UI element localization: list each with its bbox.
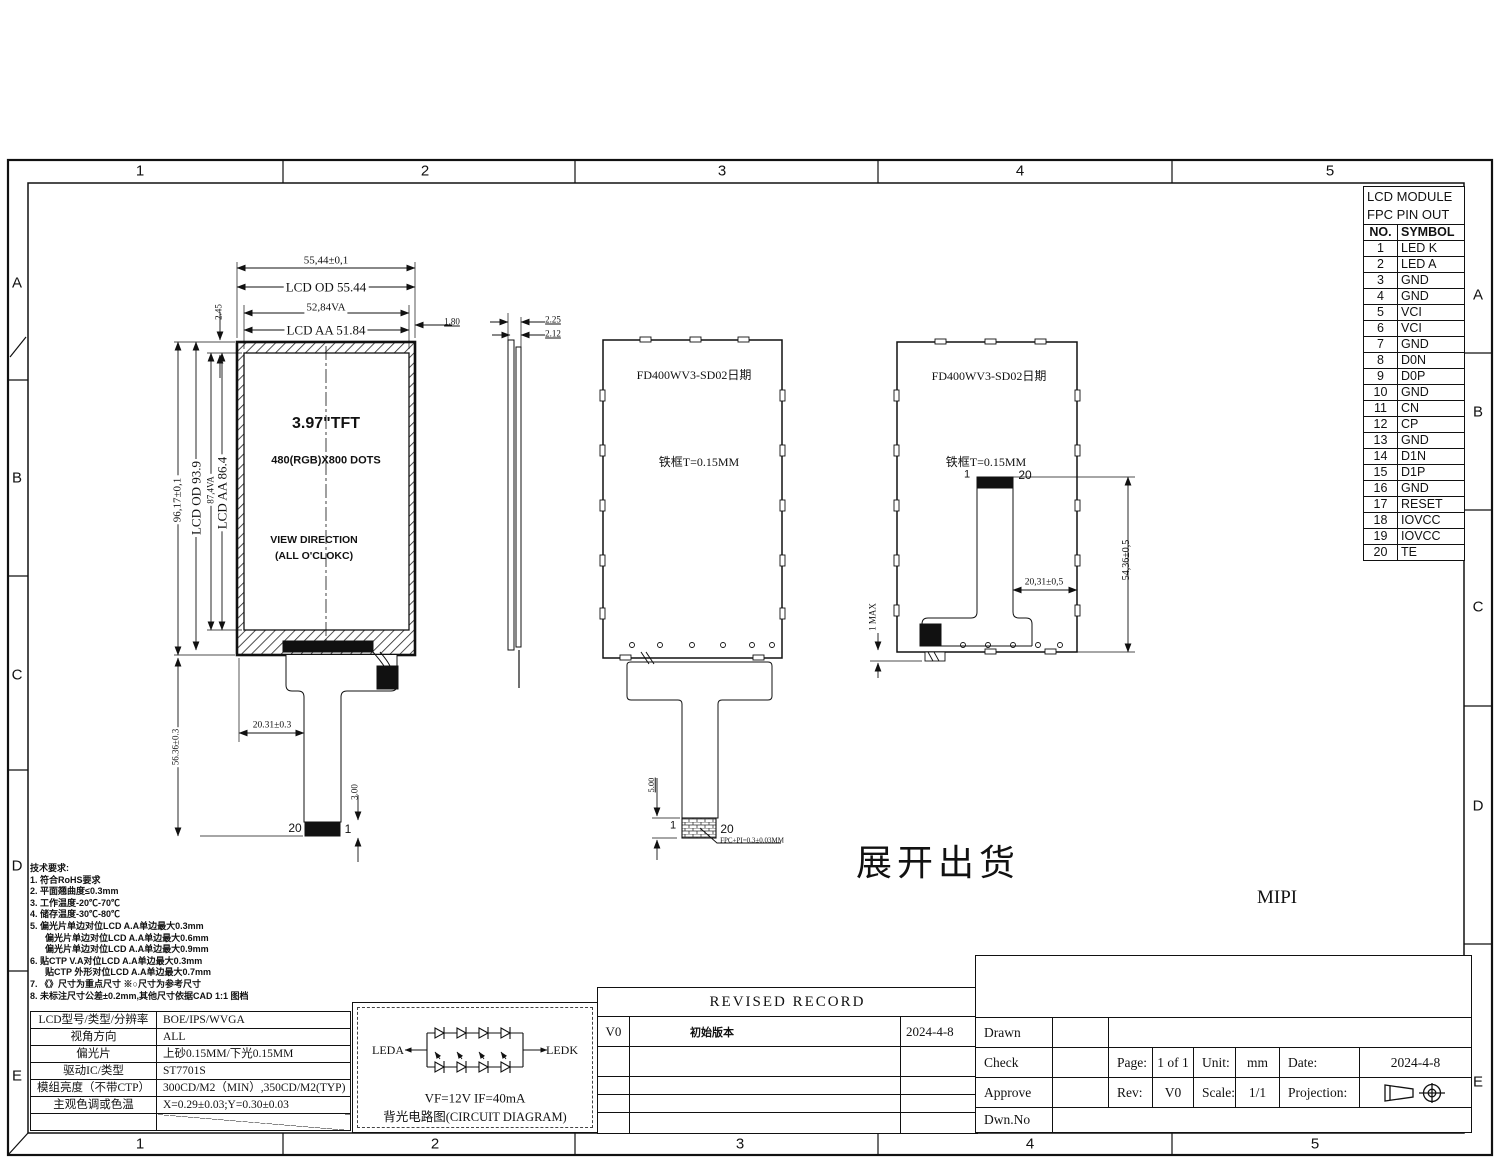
revised-record-title: REVISED RECORD <box>598 988 978 1017</box>
dwn-no-value <box>1053 1108 1472 1133</box>
dim-fpc-tail: 5.00 <box>647 778 656 793</box>
front-pin1-label: 1 <box>345 823 352 835</box>
revision-row-empty <box>598 1047 978 1077</box>
note-item: 1. 符合RoHS要求 <box>30 875 340 887</box>
rear-view-drawing <box>595 330 795 860</box>
led-anode-label: LEDA <box>372 1044 404 1056</box>
zone-row-left-e: E <box>12 1068 22 1085</box>
rev-label: Rev: <box>1109 1078 1153 1108</box>
pin-row: 19IOVCC <box>1364 529 1465 545</box>
circuit-spec: VF=12V IF=40mA <box>425 1092 526 1105</box>
pin-row: 20TE <box>1364 545 1465 561</box>
revision-row: V0 初始版本 2024-4-8 <box>598 1017 978 1047</box>
rev-value: V0 <box>1153 1078 1194 1108</box>
spec-row: 主观色调或色温X=0.29±0.03;Y=0.30±0.03 <box>31 1097 351 1114</box>
revision-row-empty <box>598 1113 978 1134</box>
note-item: 贴CTP 外形对位LCD A.A单边最大0.7mm <box>30 967 340 979</box>
front-pin20-label: 20 <box>288 822 301 834</box>
revision-row-empty <box>598 1077 978 1095</box>
pin-row: 14D1N <box>1364 449 1465 465</box>
fpc-thickness-note: FPC+PI=0.3±0.03MM <box>720 838 784 845</box>
dim-od-width-tol: 55,44±0,1 <box>304 256 349 267</box>
panel-size-label: 3.97"TFT <box>292 416 360 432</box>
note-item: 6. 贴CTP V.A对位LCD A.A单边最大0.3mm <box>30 956 340 968</box>
pin-row: 16GND <box>1364 481 1465 497</box>
dim-od-height-tol: 96,17±0,1 <box>173 476 184 525</box>
projection-label: Projection: <box>1280 1078 1360 1108</box>
title-block-row-approve: Approve Rev: V0 Scale: 1/1 Projection: <box>976 1078 1472 1108</box>
circuit-caption: 背光电路图(CIRCUIT DIAGRAM) <box>383 1111 566 1124</box>
title-block-row-check: Check Page: 1 of 1 Unit: mm Date: 2024-4… <box>976 1048 1472 1078</box>
pin-col-no: NO. <box>1364 225 1398 241</box>
zone-col-bottom-2: 2 <box>431 1136 439 1153</box>
pin-row: 5VCI <box>1364 305 1465 321</box>
pin-row: 2LED A <box>1364 257 1465 273</box>
page-label: Page: <box>1109 1048 1153 1078</box>
note-item: 8. 未标注尺寸公差±0.2mm,其他尺寸依据CAD 1:1 图档 <box>30 991 340 1003</box>
notes-heading: 技术要求: <box>30 863 340 875</box>
revision-description: 初始版本 <box>630 1017 901 1047</box>
pin-row: 13GND <box>1364 433 1465 449</box>
pin-row: 17RESET <box>1364 497 1465 513</box>
dim-right-gap: 1.80 <box>444 318 460 327</box>
folded-frame-note: 铁框T=0.15MM <box>946 456 1026 468</box>
pin-row: 18IOVCC <box>1364 513 1465 529</box>
note-item: 7. 《》尺寸为重点尺寸 ※○尺寸为参考尺寸 <box>30 979 340 991</box>
approve-label: Approve <box>976 1078 1053 1108</box>
led-cathode-label: LEDK <box>546 1044 578 1056</box>
shipping-note: 展开出货 <box>856 845 1020 881</box>
zone-row-left-c: C <box>12 667 23 684</box>
fpc-pinout-table: LCD MODULEFPC PIN OUT NO.SYMBOL 1LED K 2… <box>1363 186 1465 561</box>
pin-row: 12CP <box>1364 417 1465 433</box>
zone-row-left-b: B <box>12 470 22 487</box>
zone-row-right-a: A <box>1473 287 1483 304</box>
view-direction-line1: VIEW DIRECTION <box>270 535 358 546</box>
folded-pin1-label: 1 <box>964 470 970 481</box>
pin-col-symbol: SYMBOL <box>1398 225 1465 241</box>
title-block: Drawn Check Page: 1 of 1 Unit: mm Date: … <box>975 955 1472 1133</box>
zone-col-top-3: 3 <box>718 163 726 180</box>
spec-row: LCD型号/类型/分辨率BOE/IPS/WVGA <box>31 1012 351 1029</box>
dim-fpc-offset: 20.31±0.3 <box>253 721 291 731</box>
lcd-spec-table: LCD型号/类型/分辨率BOE/IPS/WVGA 视角方向ALL 偏光片上砂0.… <box>30 1011 351 1131</box>
revision-version: V0 <box>598 1017 630 1047</box>
title-block-row-dwnno: Dwn.No <box>976 1108 1472 1133</box>
zone-col-bottom-3: 3 <box>736 1136 744 1153</box>
zone-row-left-a: A <box>12 275 22 292</box>
rear-pin20-label: 20 <box>720 823 733 835</box>
dim-connector-height: 3.00 <box>351 784 360 800</box>
drawing-sheet: 1 2 3 4 5 1 2 3 4 5 A B C D E A B C D E … <box>0 0 1500 1159</box>
dim-folded-max: 1 MAX <box>869 603 878 631</box>
page-value: 1 of 1 <box>1153 1048 1194 1078</box>
note-item: 5. 偏光片单边对位LCD A.A单边最大0.3mm <box>30 921 340 933</box>
zone-row-left-d: D <box>12 858 23 875</box>
spec-row: 驱动IC/类型ST7701S <box>31 1063 351 1080</box>
technical-notes: 技术要求: 1. 符合RoHS要求 2. 平面翘曲度≤0.3mm 3. 工作温度… <box>30 863 340 1002</box>
pin-table-title: LCD MODULEFPC PIN OUT <box>1364 187 1465 225</box>
title-block-row-drawn: Drawn <box>976 1018 1472 1048</box>
pin-row: 10GND <box>1364 385 1465 401</box>
view-direction-line2: (ALL O'CLOKC) <box>275 551 353 562</box>
title-block-header-space <box>976 956 1472 1018</box>
pin-row: 15D1P <box>1364 465 1465 481</box>
approve-signature <box>1053 1078 1109 1108</box>
zone-col-top-1: 1 <box>136 163 144 180</box>
drawn-label: Drawn <box>976 1018 1053 1048</box>
spec-row-empty <box>31 1114 351 1131</box>
zone-row-right-c: C <box>1473 599 1484 616</box>
panel-resolution-label: 480(RGB)X800 DOTS <box>271 456 380 467</box>
revision-row-empty <box>598 1095 978 1113</box>
rear-part-number: FD400WV3-SD02日期 <box>637 369 752 381</box>
note-item: 偏光片单边对位LCD A.A单边最大0.6mm <box>30 933 340 945</box>
date-value: 2024-4-8 <box>1360 1048 1472 1078</box>
dim-fpc-length: 56.36±0.3 <box>172 727 181 767</box>
rear-frame-note: 铁框T=0.15MM <box>659 456 739 468</box>
note-item: 偏光片单边对位LCD A.A单边最大0.9mm <box>30 944 340 956</box>
dwn-no-label: Dwn.No <box>976 1108 1053 1133</box>
pin-row: 7GND <box>1364 337 1465 353</box>
third-angle-projection-icon <box>1381 1082 1451 1104</box>
note-item: 3. 工作温度-20℃-70℃ <box>30 898 340 910</box>
dim-thickness-total: 2.25 <box>545 316 561 325</box>
revision-date: 2024-4-8 <box>901 1017 978 1047</box>
revised-record-table: REVISED RECORD V0 初始版本 2024-4-8 <box>597 987 978 1134</box>
interface-label: MIPI <box>1257 888 1297 907</box>
dim-od-height: LCD OD 93.9 <box>190 459 203 537</box>
dim-aa-width: LCD AA 51.84 <box>284 324 367 337</box>
dim-folded-height: 54,36±0,5 <box>1122 540 1132 581</box>
dim-folded-offset: 20,31±0,5 <box>1025 578 1063 588</box>
note-item: 2. 平面翘曲度≤0.3mm <box>30 886 340 898</box>
note-item: 4. 储存温度-30℃-80℃ <box>30 909 340 921</box>
zone-col-top-5: 5 <box>1326 163 1334 180</box>
dim-top-gap: 2.45 <box>215 304 224 320</box>
pin-row: 6VCI <box>1364 321 1465 337</box>
pin-row: 11CN <box>1364 401 1465 417</box>
check-signature <box>1053 1048 1109 1078</box>
folded-pin20-label: 20 <box>1018 469 1031 481</box>
zone-col-top-2: 2 <box>421 163 429 180</box>
unit-label: Unit: <box>1194 1048 1236 1078</box>
spec-row: 偏光片上砂0.15MM/下光0.15MM <box>31 1046 351 1063</box>
zone-col-bottom-1: 1 <box>136 1136 144 1153</box>
date-label: Date: <box>1280 1048 1360 1078</box>
zone-col-bottom-5: 5 <box>1311 1136 1319 1153</box>
pin-row: 9D0P <box>1364 369 1465 385</box>
projection-symbol-cell <box>1360 1078 1472 1108</box>
pin-row: 3GND <box>1364 273 1465 289</box>
unit-value: mm <box>1236 1048 1280 1078</box>
check-label: Check <box>976 1048 1053 1078</box>
side-view-drawing <box>490 305 580 695</box>
dim-aa-height: LCD AA 86.4 <box>216 455 229 532</box>
dim-va-width: 52,84VA <box>304 303 347 314</box>
scale-value: 1/1 <box>1236 1078 1280 1108</box>
zone-row-right-d: D <box>1473 798 1484 815</box>
dim-od-width: LCD OD 55.44 <box>284 281 369 294</box>
zone-row-right-b: B <box>1473 404 1483 421</box>
folded-part-number: FD400WV3-SD02日期 <box>932 370 1047 382</box>
pin-row: 4GND <box>1364 289 1465 305</box>
zone-col-top-4: 4 <box>1016 163 1024 180</box>
pin-row: 1LED K <box>1364 241 1465 257</box>
zone-row-right-e: E <box>1473 1074 1483 1091</box>
spec-row: 视角方向ALL <box>31 1029 351 1046</box>
drawn-signature <box>1053 1018 1109 1048</box>
scale-label: Scale: <box>1194 1078 1236 1108</box>
spec-row: 模组亮度（不带CTP）300CD/M2（MIN）,350CD/M2(TYP) <box>31 1080 351 1097</box>
pin-row: 8D0N <box>1364 353 1465 369</box>
dim-thickness-inner: 2.12 <box>545 330 561 339</box>
rear-pin1-label: 1 <box>670 821 676 832</box>
zone-col-bottom-4: 4 <box>1026 1136 1034 1153</box>
